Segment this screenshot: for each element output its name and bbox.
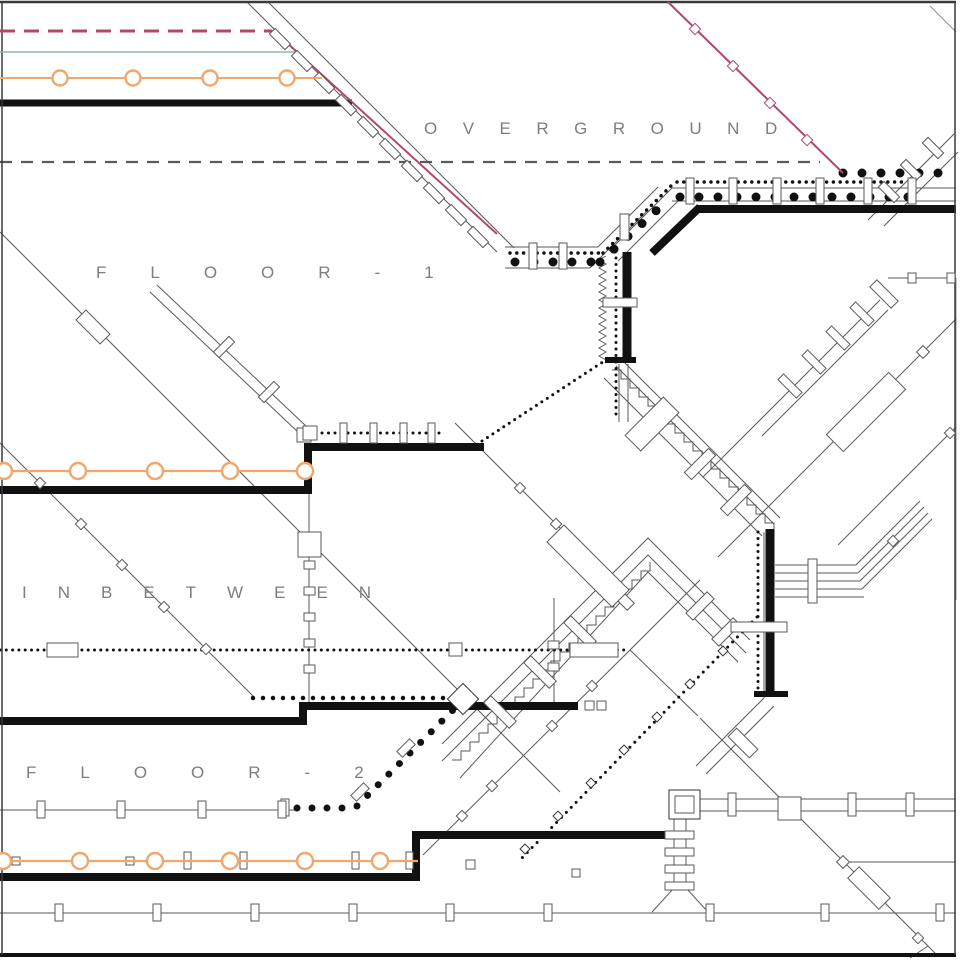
diagram-shape <box>291 50 312 71</box>
station-circle <box>0 463 12 479</box>
diagram-shape <box>446 904 454 921</box>
diagram-shape <box>706 904 714 921</box>
diagram-shape <box>586 778 596 788</box>
diagram-shape <box>572 869 580 877</box>
diagram-shape <box>860 513 928 581</box>
diagram-shape <box>529 243 537 269</box>
diagram-shape <box>597 701 606 710</box>
diagram-shape <box>848 793 856 816</box>
diagram-shape <box>370 423 377 443</box>
diagram-shape <box>870 280 898 308</box>
diagram-shape <box>379 138 400 159</box>
diagram-shape <box>826 326 850 350</box>
diagram-shape <box>553 811 563 821</box>
station-circle <box>222 463 238 479</box>
station-circle <box>297 853 313 869</box>
slab-floor-2 <box>0 835 672 877</box>
diagram-shape <box>349 904 357 921</box>
diagram-shape <box>269 28 290 49</box>
diagram-shape <box>559 243 567 269</box>
diagram-shape <box>864 178 872 204</box>
label-floor-1: FLOOR-1 <box>96 263 478 282</box>
diagram-shape <box>848 867 890 909</box>
diagram-shape <box>604 378 762 536</box>
diagram-shape <box>603 298 637 307</box>
diagram-shape <box>423 182 444 203</box>
diagram-shape <box>599 256 606 360</box>
diagram-shape <box>947 273 955 283</box>
diagram-shape <box>724 428 752 456</box>
diagram-shape <box>570 643 618 657</box>
diagram-shape <box>908 273 916 283</box>
diagram-shape <box>304 665 315 673</box>
diagram-shape <box>686 178 694 204</box>
diagram-shape <box>652 888 674 912</box>
diagram-shape <box>400 423 407 443</box>
diagram-shape <box>665 865 694 873</box>
station-circle <box>203 71 218 86</box>
diagram-shape <box>686 592 714 620</box>
diagram-shape <box>585 701 594 710</box>
diagram-shape <box>198 801 206 818</box>
diagram-shape <box>153 904 161 921</box>
diagram-shape <box>801 134 812 145</box>
station-circle <box>222 853 238 869</box>
station-circle <box>70 463 86 479</box>
diagram-shape <box>548 663 559 671</box>
diagram-shape <box>157 285 307 427</box>
diagram-shape <box>586 680 597 691</box>
station-circle <box>147 853 163 869</box>
diagram-shape <box>778 374 802 398</box>
diagram-shape <box>428 423 435 443</box>
diagram-shape <box>665 882 694 890</box>
label-floor-2: FLOOR-2 <box>26 763 408 782</box>
diagram-shape <box>728 728 758 758</box>
diagram-shape <box>445 204 466 225</box>
diagram-shape <box>675 796 694 813</box>
diagram-shape <box>55 904 63 921</box>
diagram-shape <box>729 178 737 204</box>
diagram-shape <box>117 801 125 818</box>
diagram-shape <box>304 561 315 569</box>
diagram-shape <box>686 888 708 912</box>
diagram-shape <box>600 198 670 262</box>
diagram-shape <box>482 356 612 441</box>
diagram-shape <box>728 793 736 816</box>
diagram-shape <box>912 932 923 943</box>
diagram-shape <box>862 519 932 589</box>
diagram-shape <box>304 639 315 647</box>
station-circle <box>53 71 68 86</box>
diagram-shape <box>303 426 317 440</box>
diagram-shape <box>340 423 347 443</box>
diagram-shape <box>484 696 517 729</box>
diagram-shape <box>773 178 781 204</box>
diagram-shape <box>547 525 629 607</box>
diagram-shape <box>816 178 824 204</box>
station-circle <box>126 71 141 86</box>
label-overground: OVERGROUND <box>424 119 803 138</box>
diagram-shape <box>826 372 905 451</box>
diagram-shape <box>619 745 629 755</box>
diagram-shape <box>837 856 850 869</box>
diagram-shape <box>887 535 898 546</box>
diagram-shape <box>357 116 378 137</box>
station-circle <box>372 853 388 869</box>
station-circle <box>280 71 295 86</box>
diagram-shape <box>778 797 801 820</box>
diagram-shape <box>665 831 694 839</box>
diagram-shape <box>449 643 462 656</box>
diagram-shape <box>731 622 787 632</box>
diagram-shape <box>37 801 45 818</box>
diagram-shape <box>700 718 938 956</box>
diagram-canvas: OVERGROUNDFLOOR-1INBETWEENFLOOR-2 <box>0 0 960 960</box>
line-overground-orange <box>0 71 322 86</box>
diagram-shape <box>304 613 315 621</box>
diagram-shape <box>298 532 321 557</box>
diagram-shape <box>936 904 944 921</box>
diagram-shape <box>930 6 956 32</box>
diagram-shape <box>856 501 920 565</box>
station-circle <box>147 463 163 479</box>
line-floor1-orange <box>0 463 313 479</box>
diagram-shape <box>76 310 110 344</box>
label-inbetween: INBETWEEN <box>22 583 402 602</box>
diagram-shape <box>47 643 78 657</box>
diagram-shape <box>802 350 826 374</box>
diagram-shape <box>612 370 774 532</box>
diagram-shape <box>546 720 557 731</box>
diagram-shape <box>278 801 286 818</box>
diagram-shape <box>884 152 958 226</box>
diagram-shape <box>423 650 630 855</box>
diagram-shape <box>906 793 914 816</box>
diagram-shape <box>620 214 629 240</box>
station-circle <box>297 463 313 479</box>
diagram-shape <box>665 848 694 856</box>
station-section-drawing: OVERGROUNDFLOOR-1INBETWEENFLOOR-2 <box>0 0 960 960</box>
diagram-shape <box>467 226 488 247</box>
diagram-shape <box>213 336 234 357</box>
diagram-shape <box>544 904 552 921</box>
diagram-shape <box>838 427 956 545</box>
diagram-shape <box>548 641 559 649</box>
diagram-shape <box>466 860 475 869</box>
diagram-shape <box>821 904 829 921</box>
diagram-shape <box>652 712 662 722</box>
station-circle <box>0 853 11 869</box>
diagram-shape <box>808 559 817 603</box>
diagram-shape <box>685 679 695 689</box>
station-circle <box>72 853 88 869</box>
diagram-shape <box>696 698 764 766</box>
diagram-shape <box>251 904 259 921</box>
diagram-shape <box>908 178 916 204</box>
diagram-shape <box>850 302 874 326</box>
diagram-shape <box>150 292 300 434</box>
diagram-shape <box>357 706 457 806</box>
